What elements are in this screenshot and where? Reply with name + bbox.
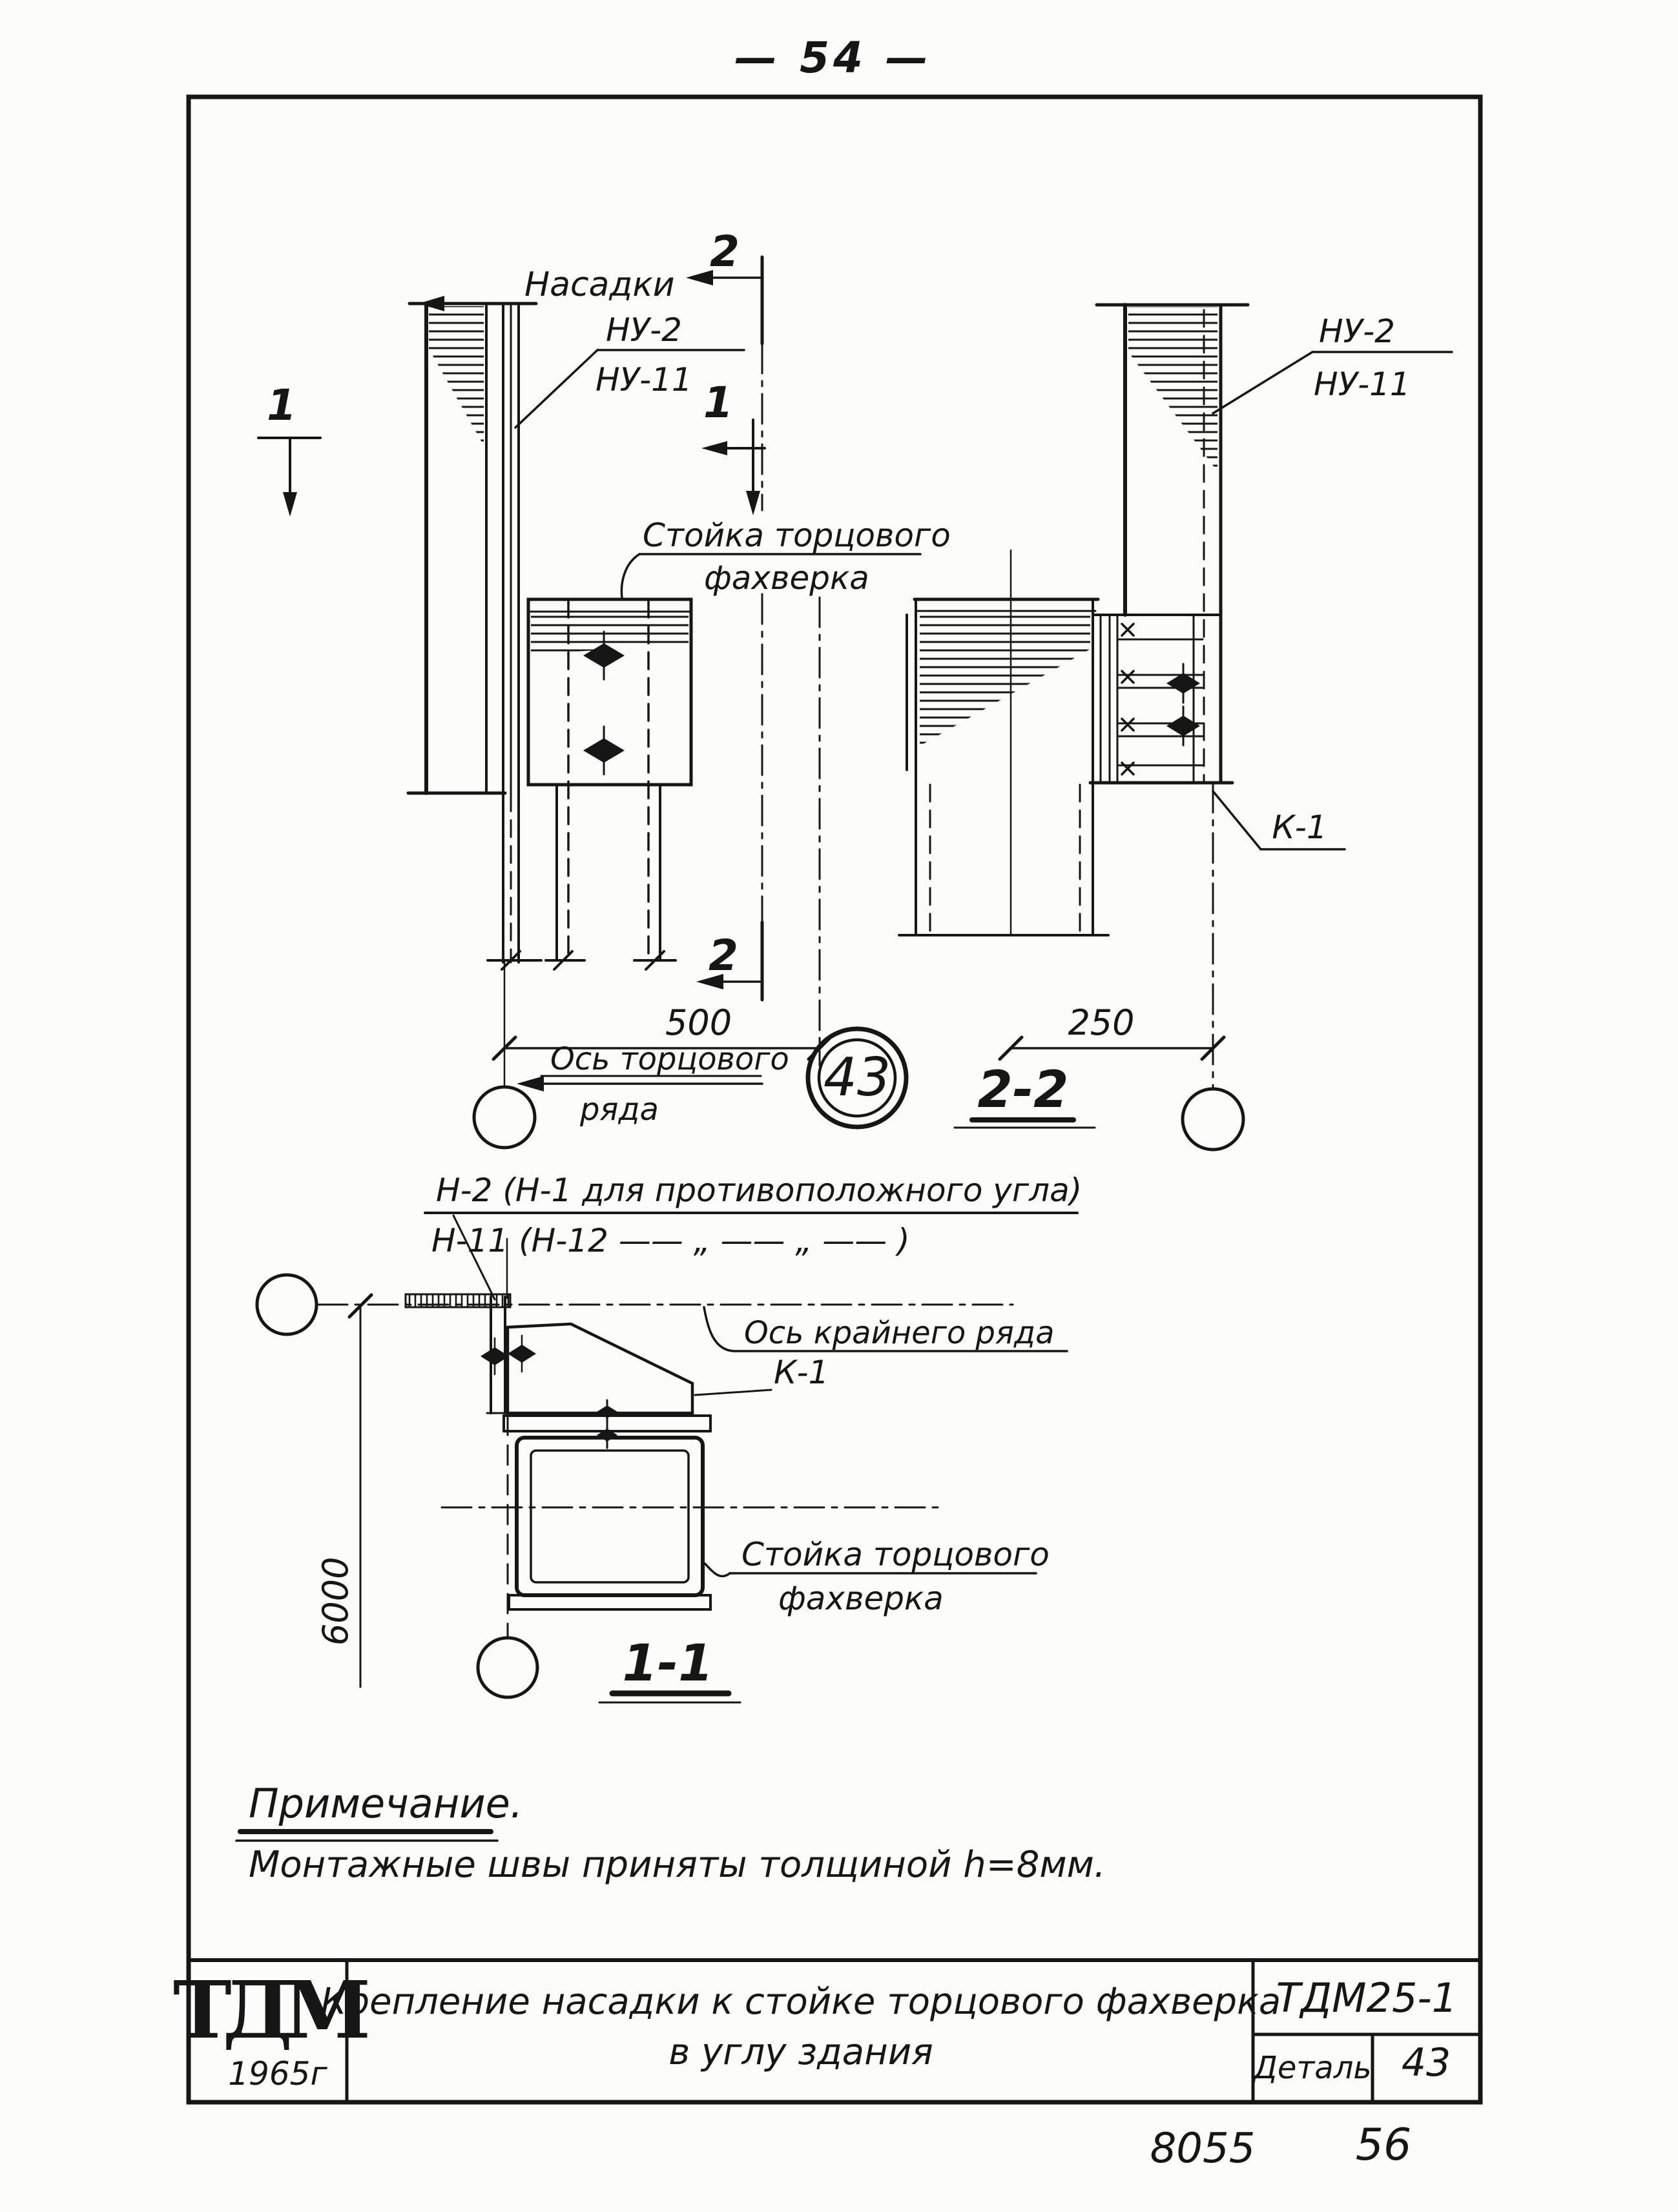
hatched-plate [406, 1294, 510, 1307]
note-line2: Н-11 (Н-12 —— „ —— „ —— ) [431, 1222, 910, 1259]
dim-500-value: 500 [665, 1002, 732, 1043]
drawing-title-line1: Крепление насадки к стойке торцового фах… [321, 1981, 1281, 2023]
section-1-center-numeral: 1 [703, 378, 733, 428]
page-number: — 54 — [734, 33, 932, 83]
nasadki-label: Насадки [524, 265, 675, 304]
hatch-wide-column [920, 614, 1090, 746]
section-mark-1-left [258, 438, 320, 517]
stoyka-lower-line1: Стойка торцового [741, 1536, 1050, 1573]
axis-bubble-lower-left [257, 1275, 316, 1334]
nu11-label-right: НУ-11 [1314, 366, 1411, 403]
section-1-1-title: 1-1 [623, 1635, 714, 1693]
dim-6000-value: 6000 [315, 1557, 356, 1646]
section-2-bottom-numeral: 2 [709, 931, 738, 980]
drawing-sheet: — 54 — 8055 56 [0, 0, 1678, 2212]
axis-label-line1: Ось торцового [550, 1041, 789, 1077]
section-2-top-numeral: 2 [710, 227, 740, 276]
column-section [517, 1438, 703, 1595]
k1-label-right: К-1 [1272, 809, 1327, 846]
section-1-left-numeral: 1 [267, 380, 296, 430]
axis-bubble-left [474, 1087, 535, 1148]
axis-arrow-icon [517, 1076, 544, 1091]
note-line1: Н-2 (Н-1 для противоположного угла) [436, 1172, 1082, 1209]
k1-label-lower: К-1 [774, 1354, 829, 1391]
gusset-plate [508, 1324, 692, 1413]
footer-right-number: 56 [1356, 2120, 1412, 2171]
axis-label-line2: ряда [579, 1091, 659, 1128]
notes-underline [236, 1832, 497, 1841]
dim-250-value: 250 [1068, 1002, 1134, 1043]
bolt-x-marks [1122, 624, 1134, 774]
stoyka-label-line1: Стойка торцового [643, 517, 951, 554]
axis-bubble-right [1183, 1089, 1243, 1150]
detail-cell-label: Деталь [1252, 2050, 1371, 2086]
notes-body: Монтажные швы приняты толщиной h=8мм. [249, 1844, 1106, 1886]
detail-bubble-number: 43 [823, 1047, 891, 1108]
org-logo-year: 1965г [228, 2055, 327, 2093]
detail-cell-number: 43 [1402, 2040, 1451, 2085]
section-2-2-title: 2-2 [978, 1061, 1069, 1119]
nu2-label-left: НУ-2 [606, 311, 682, 349]
axis-bubble-lower-bottom [478, 1638, 537, 1697]
upper-right-view-linework [899, 305, 1452, 1150]
section-mark-1-center [701, 420, 765, 515]
axis-krainy-label: Ось крайнего ряда [744, 1315, 1055, 1351]
nu11-label-left: НУ-11 [596, 361, 692, 398]
notes-heading: Примечание. [249, 1780, 523, 1827]
lower-view-linework [257, 1213, 1077, 1702]
footer-left-number: 8055 [1150, 2125, 1256, 2173]
stoyka-label-line2: фахверка [704, 559, 869, 597]
doc-code: ТДМ25-1 [1276, 1974, 1458, 2021]
nu2-label-right: НУ-2 [1319, 313, 1395, 350]
upper-left-view-linework [258, 257, 920, 1148]
drawing-title-line2: в углу здания [668, 2031, 933, 2073]
hatch-left-column [429, 306, 484, 446]
stoyka-lower-line2: фахверка [778, 1580, 944, 1617]
drawing-canvas: — 54 — 8055 56 [0, 0, 1678, 2212]
